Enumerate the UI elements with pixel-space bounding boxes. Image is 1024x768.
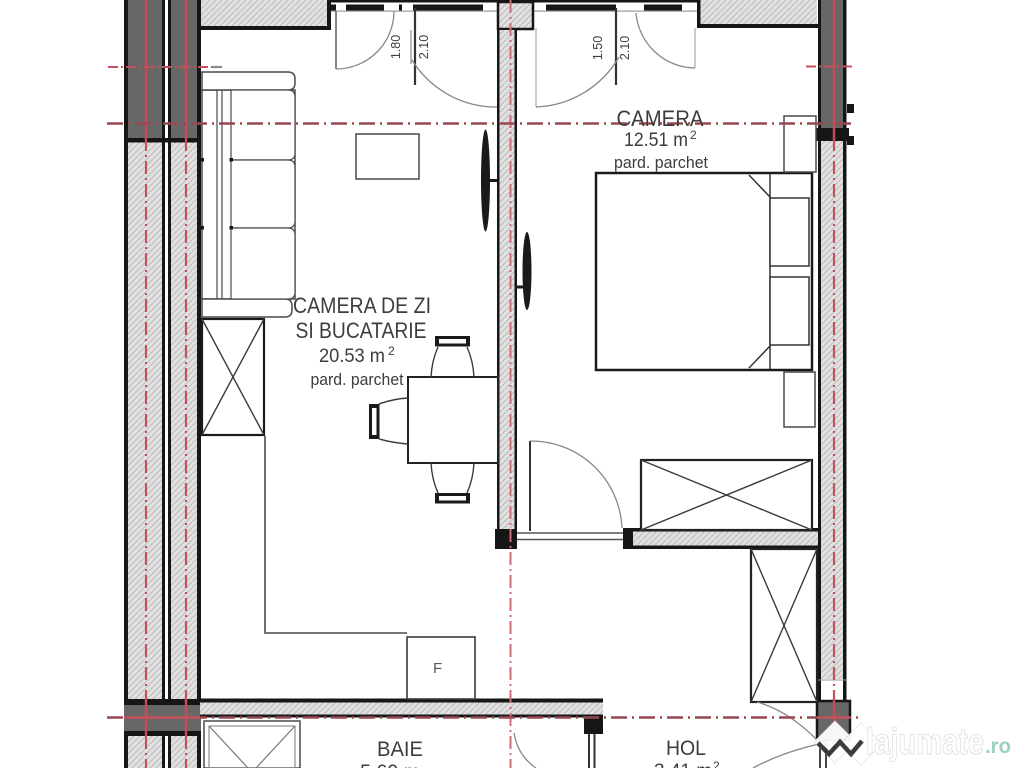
svg-text:2: 2 — [690, 128, 697, 142]
svg-text:20.53 m: 20.53 m — [319, 346, 385, 367]
svg-text:5.60 m: 5.60 m — [360, 762, 420, 768]
svg-text:.ro: .ro — [985, 735, 1011, 758]
svg-text:2: 2 — [388, 344, 395, 358]
svg-text:pard. parchet: pard. parchet — [311, 371, 404, 389]
svg-text:HOL: HOL — [666, 737, 706, 760]
svg-text:1.80: 1.80 — [389, 35, 403, 59]
svg-text:pard. parchet: pard. parchet — [614, 154, 708, 172]
svg-text:1.50: 1.50 — [591, 36, 605, 60]
svg-text:2: 2 — [713, 759, 720, 768]
svg-text:3.41 m: 3.41 m — [654, 761, 712, 768]
svg-text:2.10: 2.10 — [417, 35, 431, 59]
svg-text:F: F — [433, 660, 442, 677]
svg-text:SI BUCATARIE: SI BUCATARIE — [296, 318, 427, 343]
svg-text:CAMERA DE ZI: CAMERA DE ZI — [293, 293, 431, 318]
svg-text:2.10: 2.10 — [618, 36, 632, 60]
svg-text:12.51 m: 12.51 m — [624, 130, 688, 151]
svg-text:lajumate: lajumate — [866, 721, 984, 762]
svg-text:BAIE: BAIE — [377, 738, 423, 761]
